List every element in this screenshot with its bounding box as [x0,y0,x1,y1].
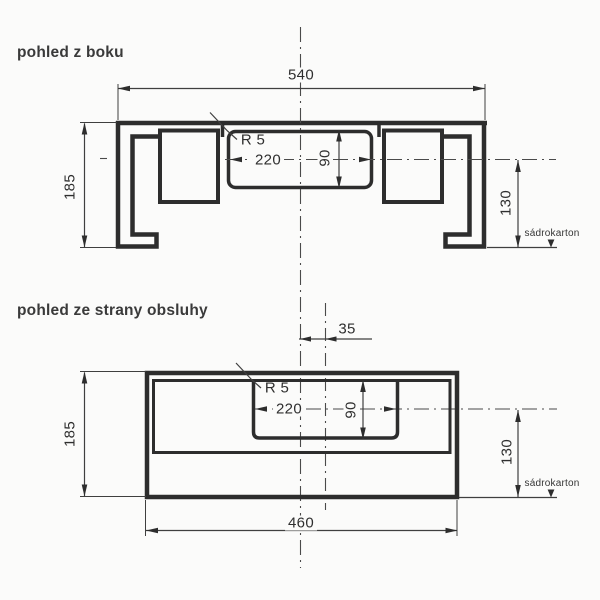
dim-220-front-label: 220 [273,402,305,417]
arrow-460-left [146,528,158,534]
arrow-board-front [548,490,555,498]
radius-front-label: R 5 [265,381,289,396]
technical-drawing-page: pohled z boku 540 185 R 5 220 90 130 sád… [0,0,600,600]
arrow-460-right [446,528,458,534]
dim-185-side-label: 185 [63,174,78,200]
dim-35-label: 35 [335,322,358,337]
radius-side-label: R 5 [241,133,265,148]
dim-90-side-label: 90 [318,146,333,169]
side-left-channel [118,121,158,247]
side-right-channel [444,121,484,247]
front-outer-body [147,373,457,497]
side-view-outline [116,121,487,247]
arrow-540-right [473,86,485,92]
arrow-35-left [300,336,311,341]
dim-220-side-label: 220 [252,153,284,168]
arrow-130s-bottom [515,236,521,248]
arrow-185-top [82,123,88,135]
dim-130-side-label: 130 [499,190,514,216]
arrow-540-left [118,86,130,92]
arrow-220f-left [255,406,267,412]
arrow-130f-bottom [515,485,521,497]
front-view-title: pohled ze strany obsluhy [17,303,208,319]
side-right-box [384,131,442,203]
front-view-outline [147,373,457,497]
dim-90-front-label: 90 [344,398,359,421]
arrow-220f-right [384,406,396,412]
center-lines [100,27,557,568]
arrow-130f-top [515,410,521,422]
dim-460-label: 460 [285,516,317,531]
dim-130-front-label: 130 [500,439,515,465]
arrow-35-right [326,336,337,341]
arrow-220s-left [230,157,242,163]
side-view-title: pohled z boku [17,45,124,61]
arrow-130s-top [515,160,521,172]
dim-540-label: 540 [285,68,317,83]
board-label-side: sádrokarton [524,229,579,239]
side-left-box [160,131,218,203]
arrow-220s-right [359,157,371,163]
drawing-canvas [0,0,600,600]
arrow-185-bottom [82,236,88,248]
leader-r5-front [236,363,261,388]
dim-185-front-label: 185 [63,421,78,447]
board-label-front: sádrokarton [524,479,579,489]
arrow-board-side [548,240,555,248]
